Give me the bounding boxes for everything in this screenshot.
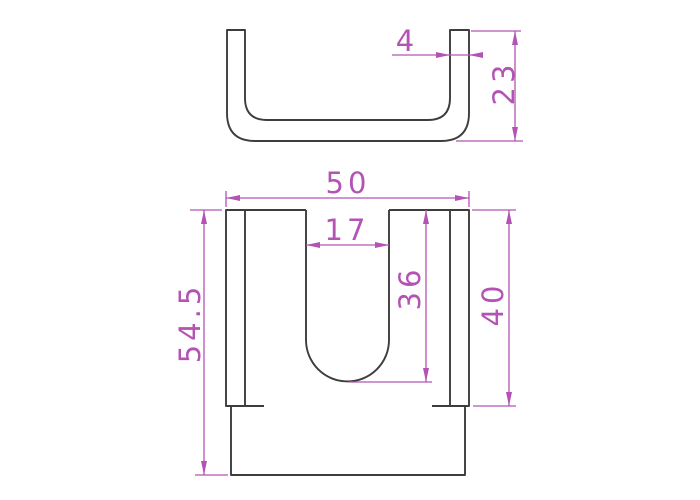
dim-arrow-right-icon	[436, 52, 450, 58]
dim-arrow-down-icon	[506, 392, 512, 406]
dim-arrow-down-icon	[423, 368, 429, 382]
top-view-dimensions: 4 23	[392, 24, 523, 141]
dim-arrow-right-icon	[375, 242, 389, 248]
top-view-outline	[227, 30, 469, 141]
dim-slot-width: 17	[306, 213, 389, 248]
dim-arrow-up-icon	[201, 210, 207, 224]
engineering-drawing: 4 23 50	[0, 0, 700, 500]
front-view-left-leg	[226, 210, 306, 406]
dim-arrow-left-icon	[226, 195, 240, 201]
front-view-lower-body	[231, 406, 465, 475]
dim-slot-depth-text: 36	[393, 266, 427, 311]
dim-side-height: 40	[472, 210, 516, 406]
dim-overall-width-text: 50	[326, 166, 371, 200]
dim-arrow-down-icon	[512, 127, 518, 141]
dim-arrow-left-icon	[306, 242, 320, 248]
dim-side-height-text: 40	[476, 282, 510, 327]
dim-total-height: 54.5	[173, 210, 228, 475]
dim-arrow-up-icon	[423, 210, 429, 224]
dim-slot-width-text: 17	[325, 213, 370, 247]
dim-wall-thickness-text: 4	[396, 24, 418, 58]
dim-arrow-up-icon	[506, 210, 512, 224]
dim-profile-height: 23	[456, 31, 523, 141]
dim-arrow-right-icon	[455, 195, 469, 201]
front-view	[226, 210, 469, 475]
dim-arrow-left-icon	[469, 52, 483, 58]
dim-arrow-up-icon	[512, 31, 518, 45]
top-view	[227, 30, 469, 141]
dim-profile-height-text: 23	[487, 61, 521, 106]
dim-overall-width: 50	[226, 166, 469, 207]
dim-total-height-text: 54.5	[173, 283, 207, 364]
dim-arrow-down-icon	[201, 461, 207, 475]
